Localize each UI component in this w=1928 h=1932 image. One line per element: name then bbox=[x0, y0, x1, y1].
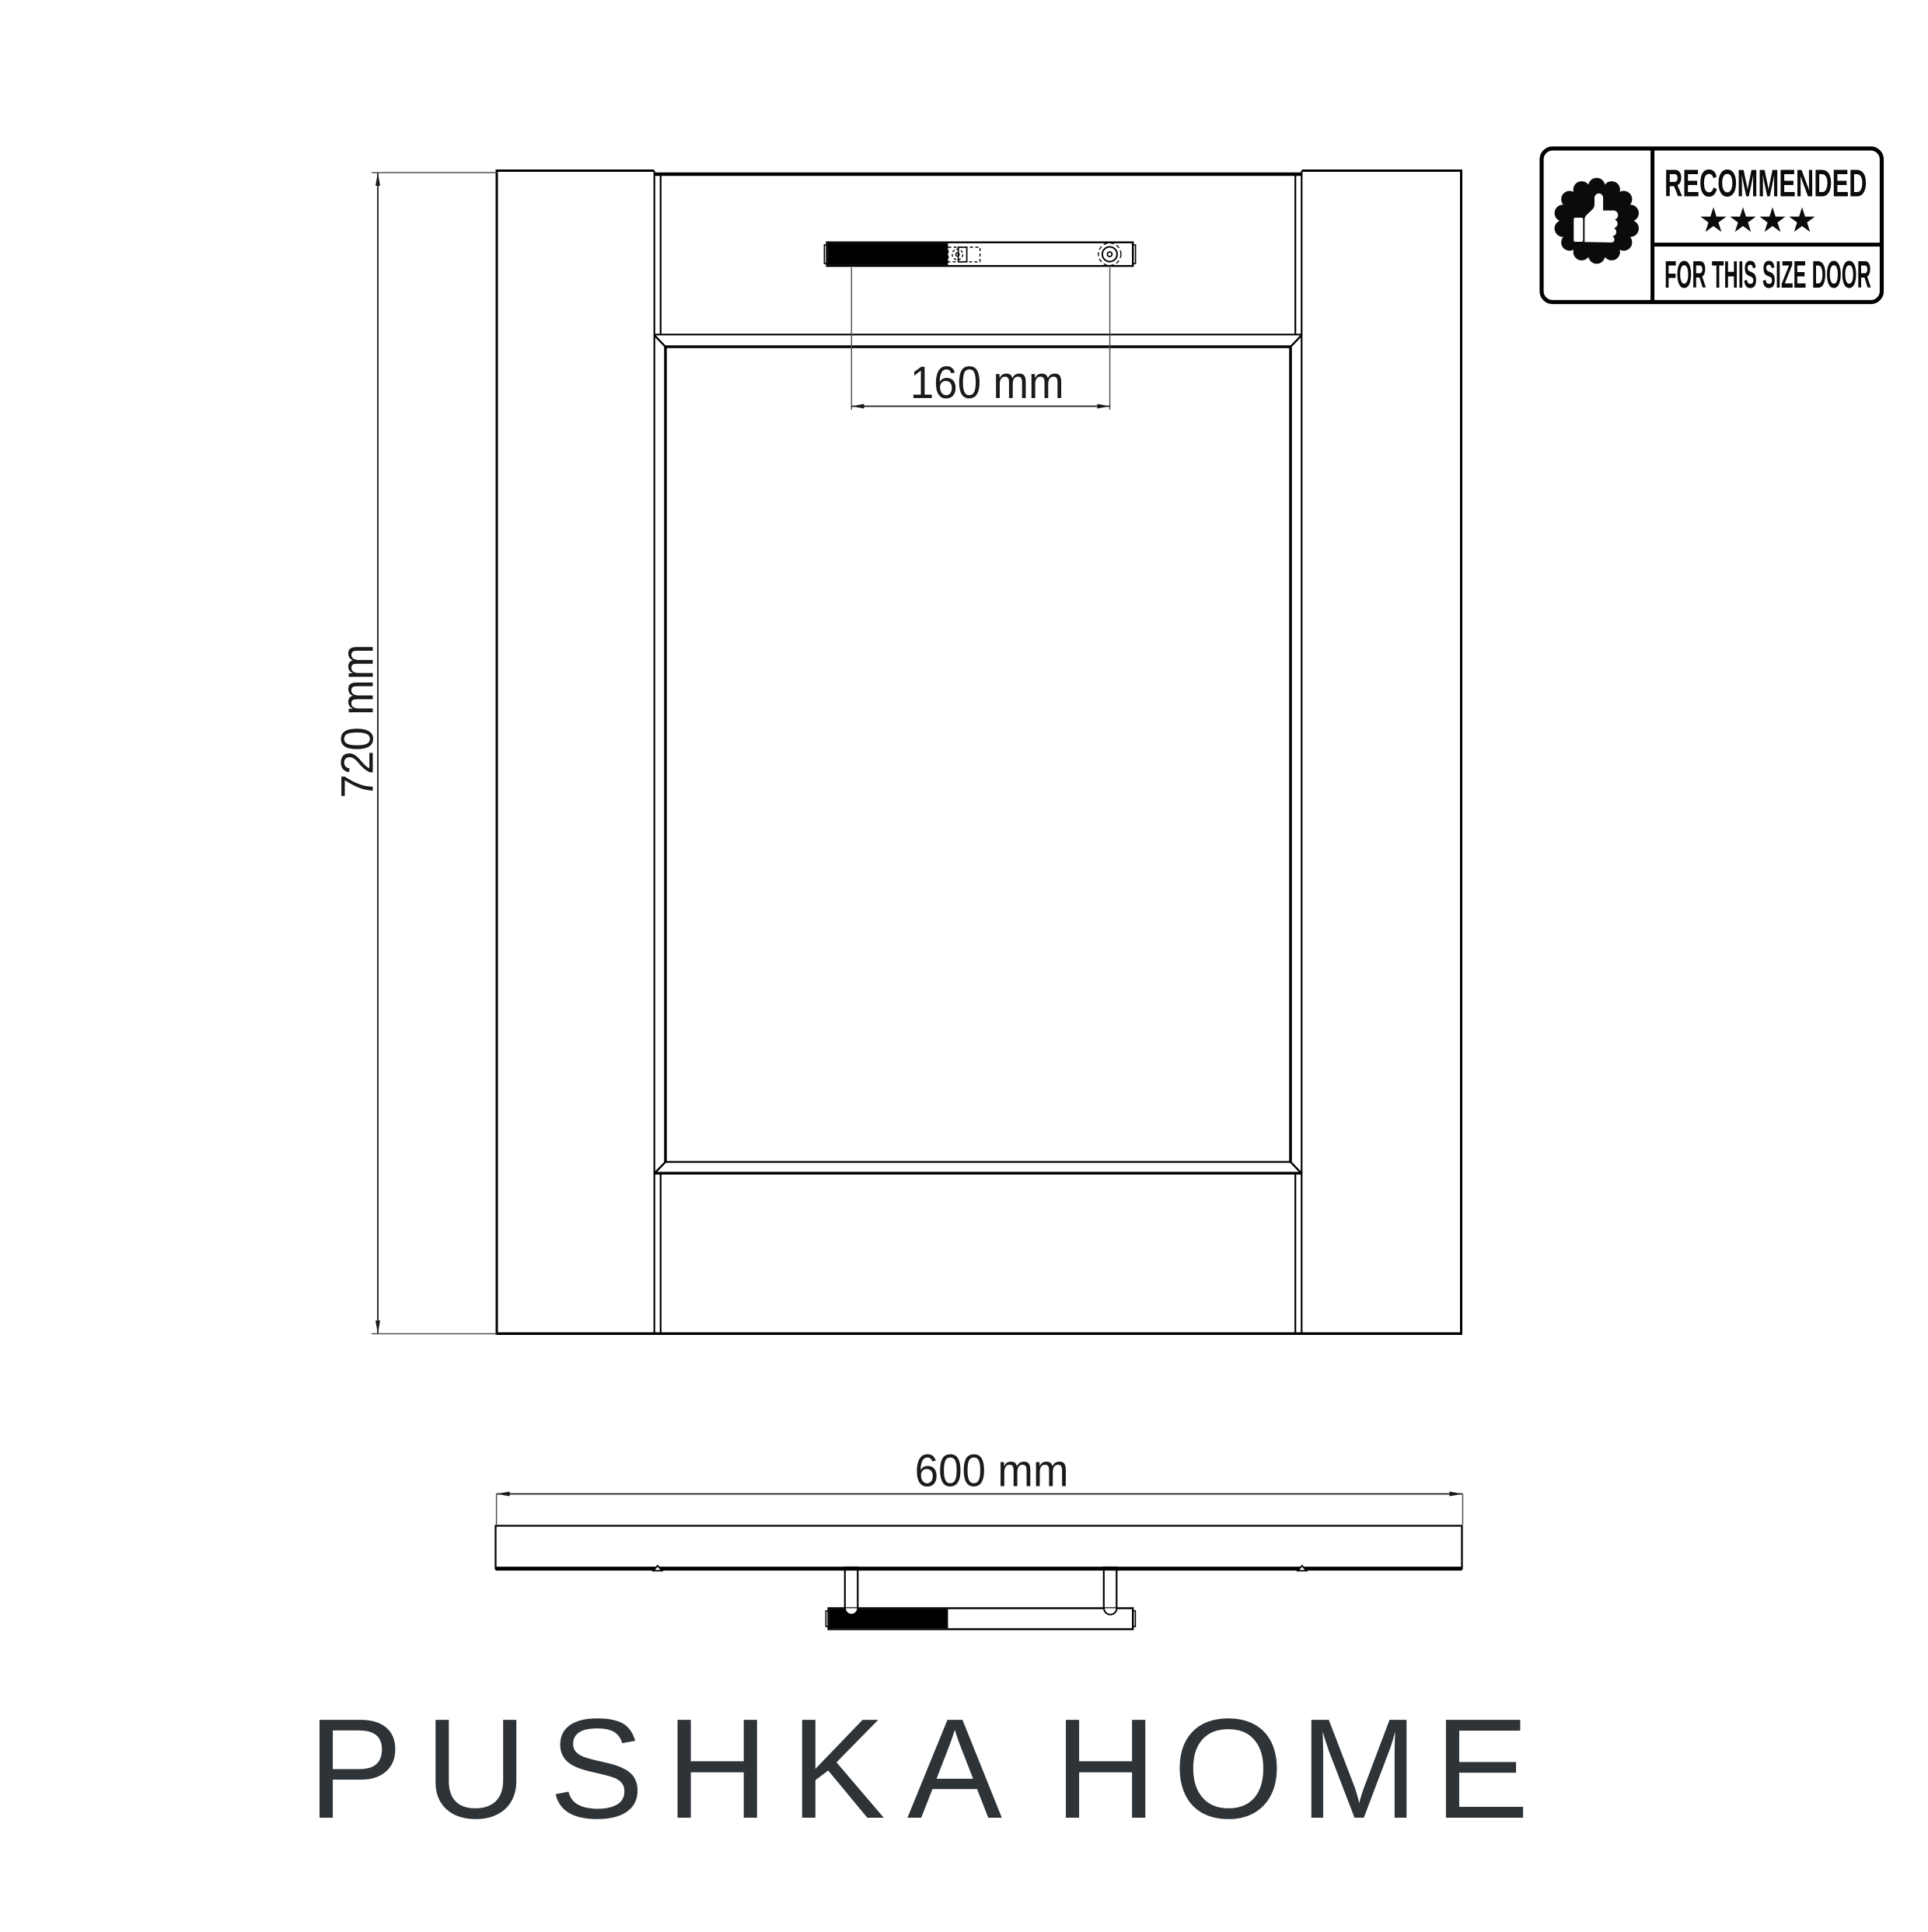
svg-text:160 mm: 160 mm bbox=[910, 358, 1064, 408]
svg-text:600 mm: 600 mm bbox=[915, 1446, 1069, 1497]
svg-text:RECOMMENDED: RECOMMENDED bbox=[1664, 163, 1867, 205]
svg-text:FOR THIS SIZE DOOR: FOR THIS SIZE DOOR bbox=[1664, 254, 1871, 296]
svg-text:720 mm: 720 mm bbox=[333, 645, 383, 798]
